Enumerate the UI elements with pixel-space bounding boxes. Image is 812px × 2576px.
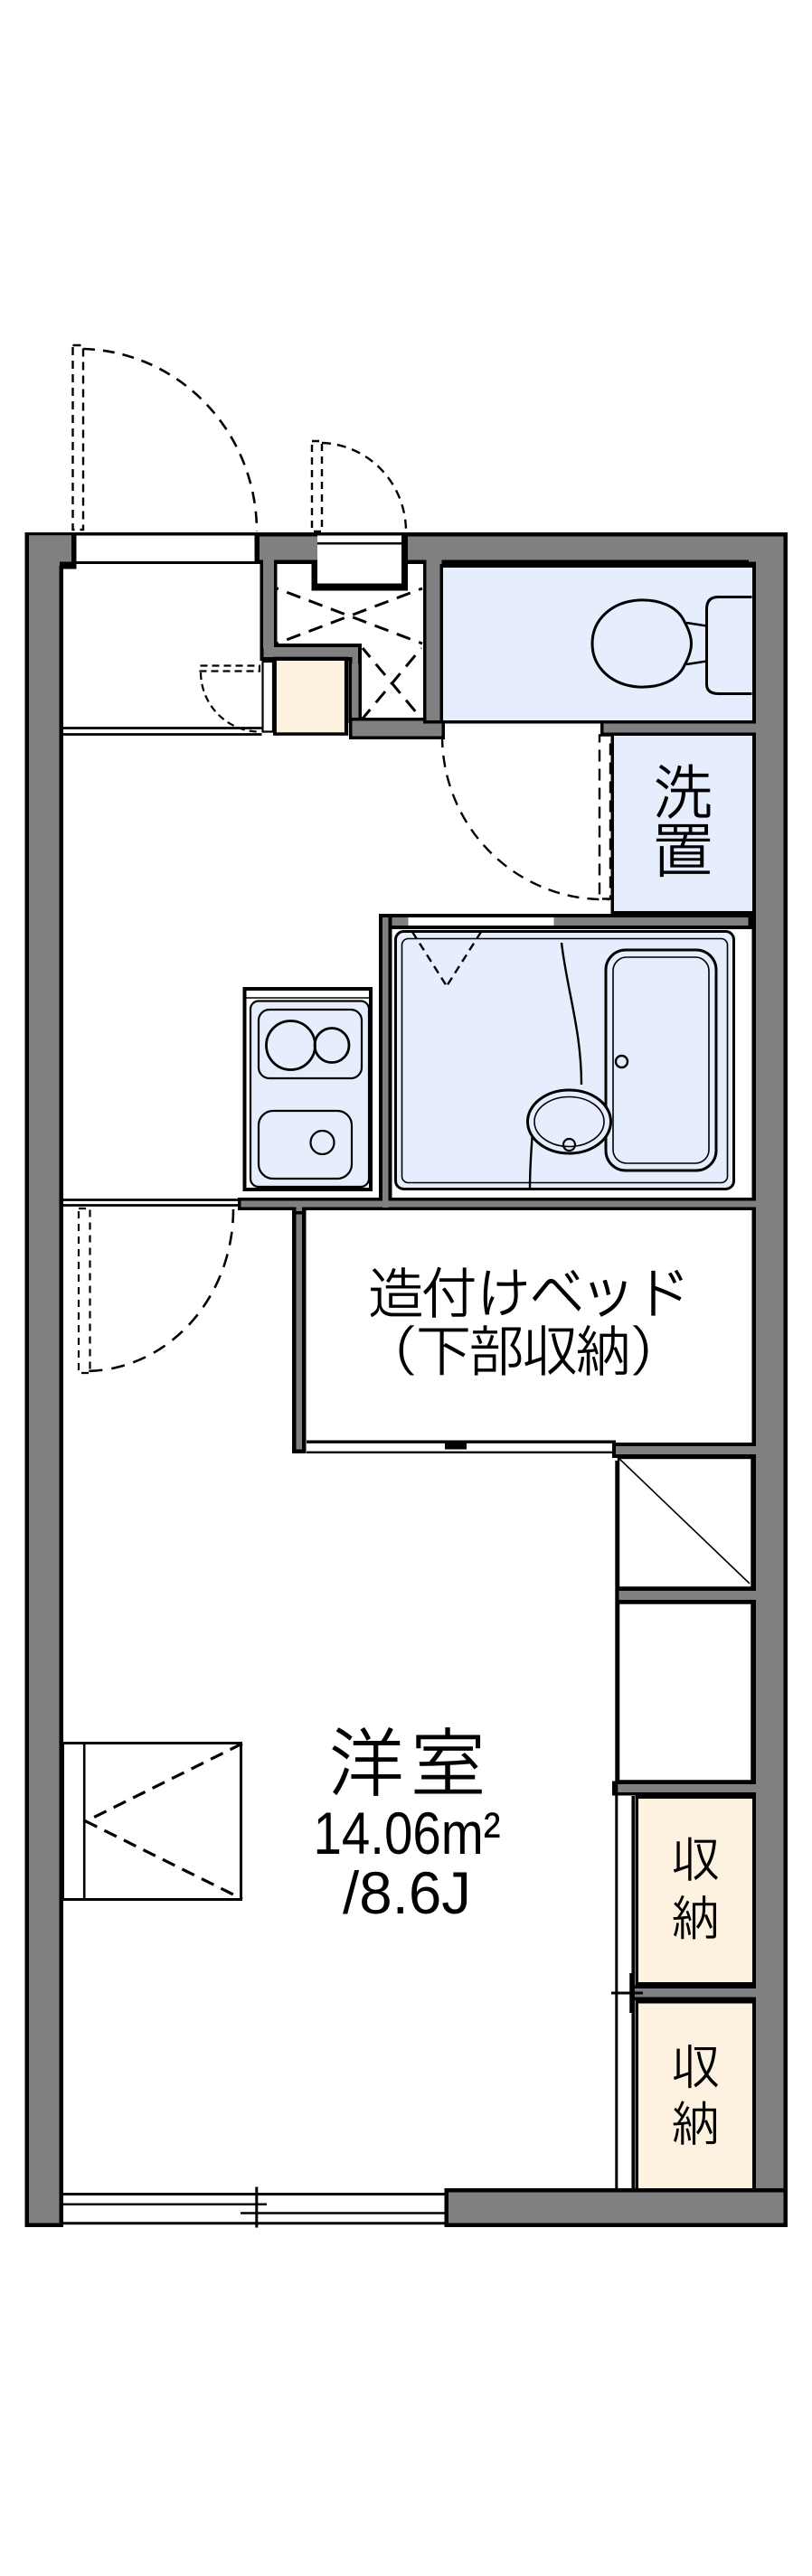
svg-text:14.06m²: 14.06m² [314,1800,501,1866]
svg-text:/8.6J: /8.6J [343,1859,471,1926]
